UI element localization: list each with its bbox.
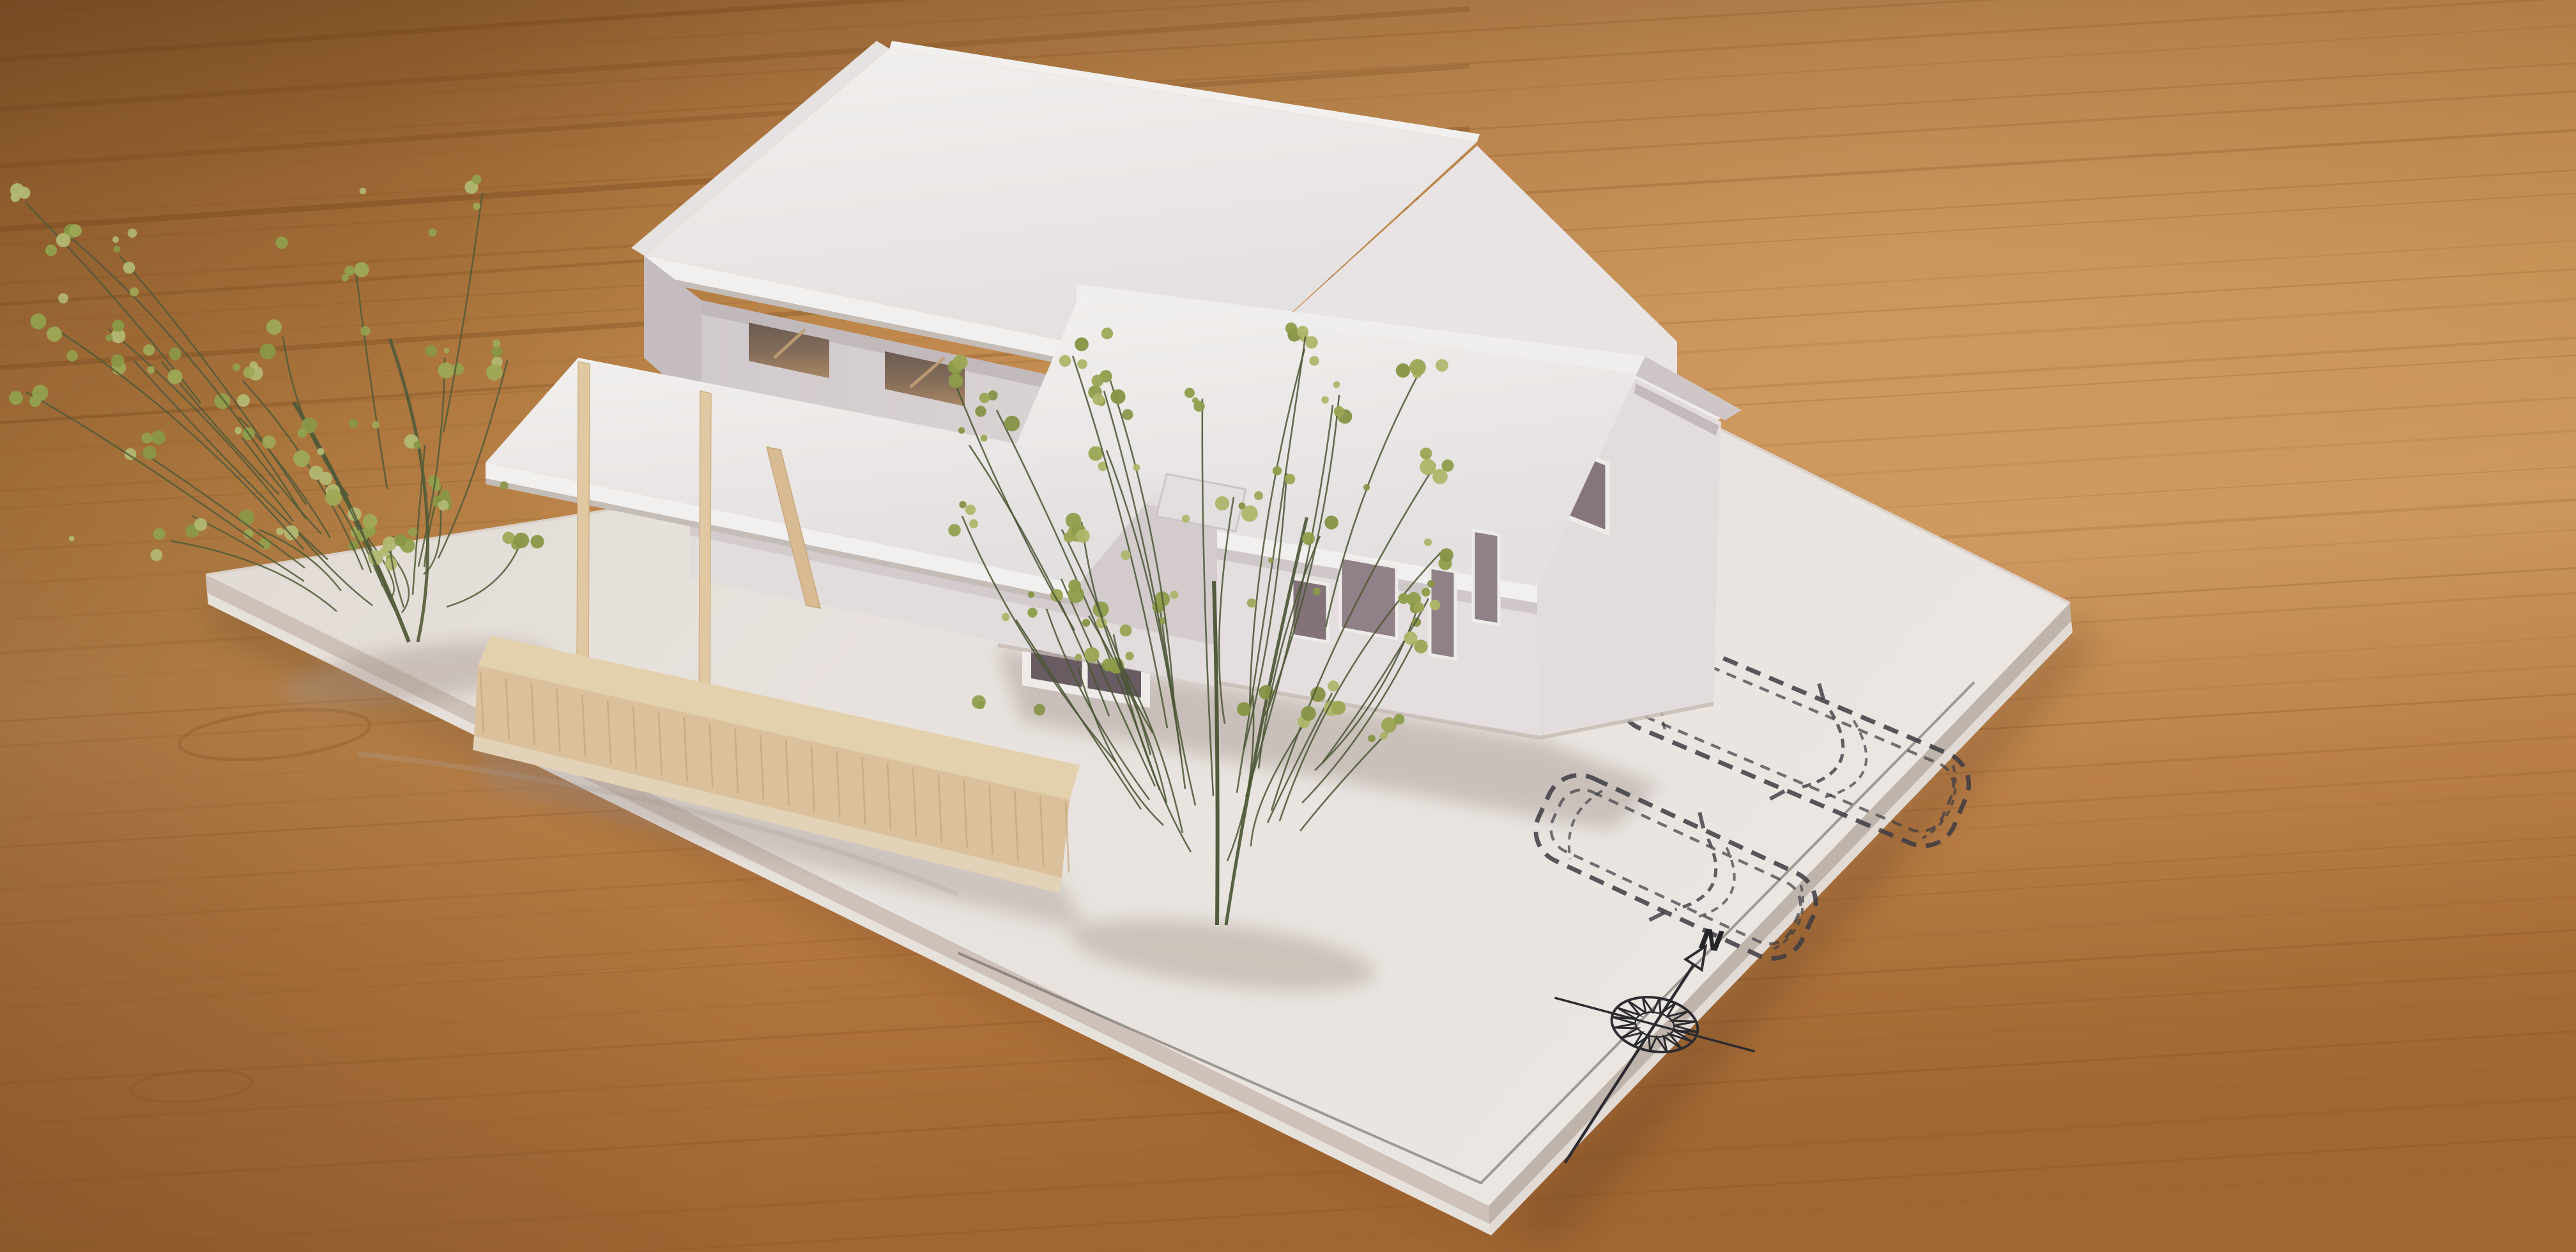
scene-canvas: N (0, 0, 2576, 1252)
photo-stage: N (0, 0, 2576, 1252)
photo-vignette (0, 0, 2576, 1252)
